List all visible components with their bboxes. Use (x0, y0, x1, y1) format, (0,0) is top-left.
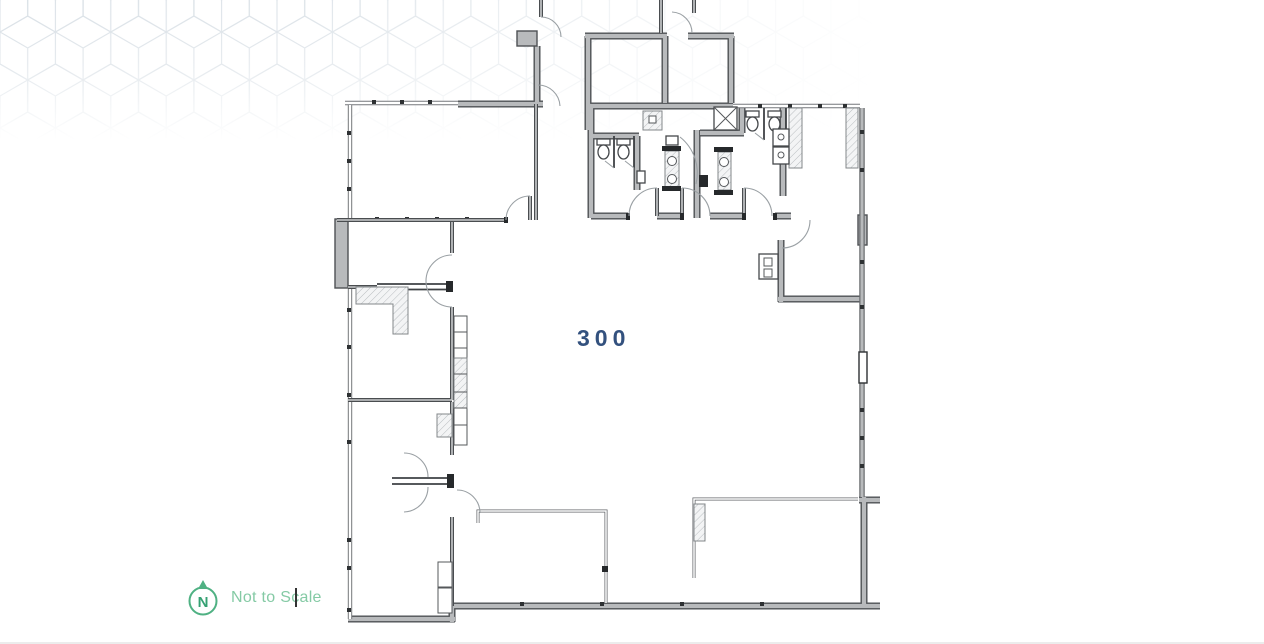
wall-column (517, 31, 537, 46)
drinking-fountain-icon (666, 136, 678, 145)
kitchen-counter (789, 108, 802, 168)
scale-note: Not to Scale (231, 589, 322, 607)
shelving (454, 316, 467, 445)
window-panel (859, 352, 867, 383)
sink-icon (668, 175, 677, 184)
legend: N Not to Scale (184, 578, 322, 618)
toilet-icon (617, 139, 630, 159)
north-arrow-icon: N (184, 578, 222, 618)
unit-label[interactable]: 300 (577, 325, 630, 351)
elevator-shaft (714, 107, 737, 130)
wall-pier (335, 219, 348, 288)
low-partitions (478, 499, 858, 603)
kitchen-counter (846, 108, 858, 168)
toilet-icon (746, 111, 759, 131)
urinal-icon (637, 171, 645, 183)
stairs-hatch (356, 287, 408, 334)
wall-fixture (699, 175, 708, 187)
kitchen-sink (773, 129, 789, 164)
floor-plan-page: 300 N Not to Scale (0, 0, 1264, 644)
svg-text:N: N (198, 594, 209, 611)
partition-post (602, 566, 608, 572)
sink-icon (720, 178, 729, 187)
sink-icon (720, 158, 729, 167)
toilet-icon (597, 139, 610, 159)
floor-plan-canvas: 300 (0, 0, 1264, 642)
work-counter (694, 504, 705, 541)
toilet-icon (768, 111, 781, 131)
cabinet (438, 562, 452, 587)
casework (437, 414, 452, 437)
double-door-leaves (377, 284, 450, 484)
cabinet (438, 588, 452, 613)
text-cursor (295, 588, 297, 607)
electrical-panel (759, 254, 778, 279)
sink-icon (668, 157, 677, 166)
